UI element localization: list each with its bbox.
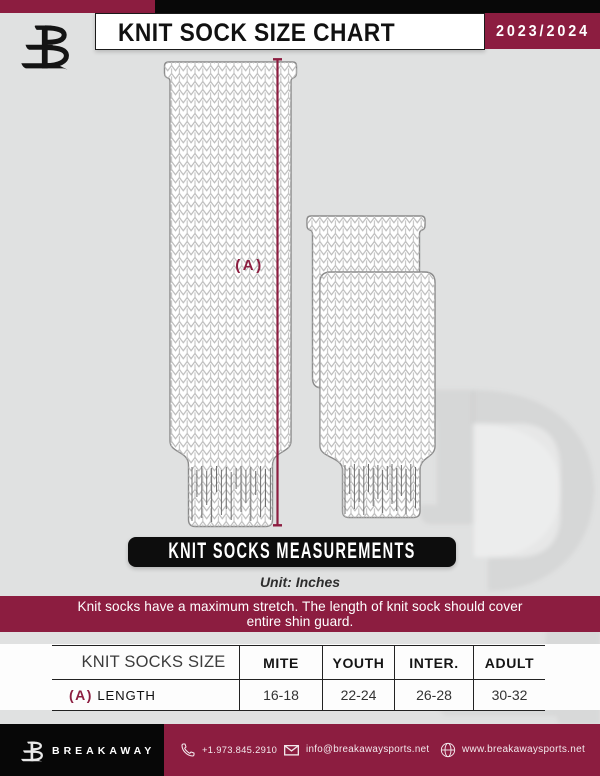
svg-text:(A): (A) [235, 257, 264, 274]
